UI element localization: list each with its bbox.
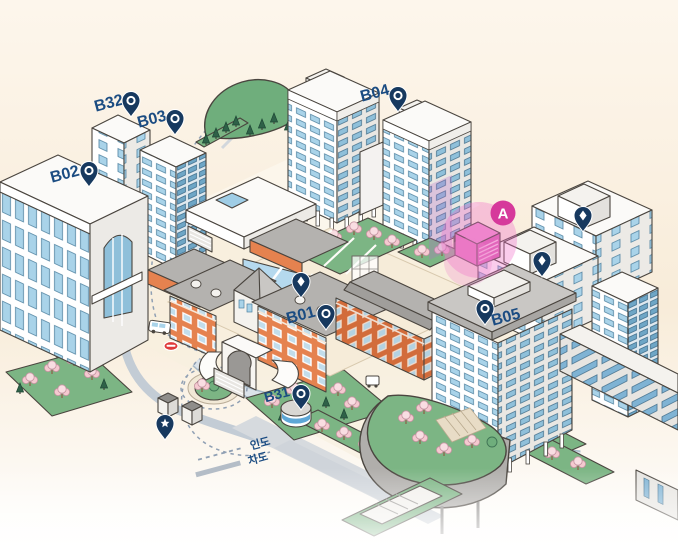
campus-map: 인도 차도 B32 B03 B02 B04 B01 B05 B31 A [0, 0, 678, 558]
a-badge-label: A [498, 206, 509, 223]
kiosk-1 [158, 393, 178, 417]
building-b02[interactable] [0, 155, 148, 372]
bus-stop-marker [164, 342, 178, 351]
bottom-fade [0, 468, 678, 558]
marker-a-badge[interactable]: A [491, 201, 516, 226]
highlight-glow-2 [444, 238, 492, 286]
building-b31[interactable] [281, 400, 311, 427]
kiosk-2 [182, 401, 202, 425]
tower-connector [360, 142, 383, 215]
campus-map-canvas: 인도 차도 B32 B03 B02 B04 B01 B05 B31 A [0, 0, 678, 558]
